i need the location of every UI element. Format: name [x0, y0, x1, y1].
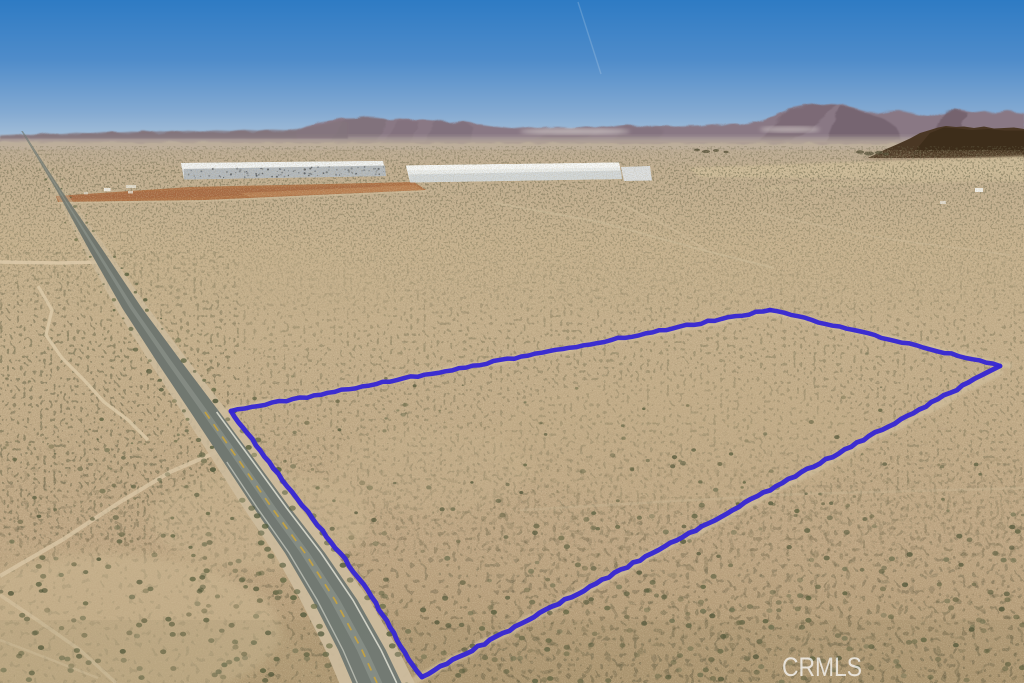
svg-text:CRMLS: CRMLS: [782, 652, 862, 682]
